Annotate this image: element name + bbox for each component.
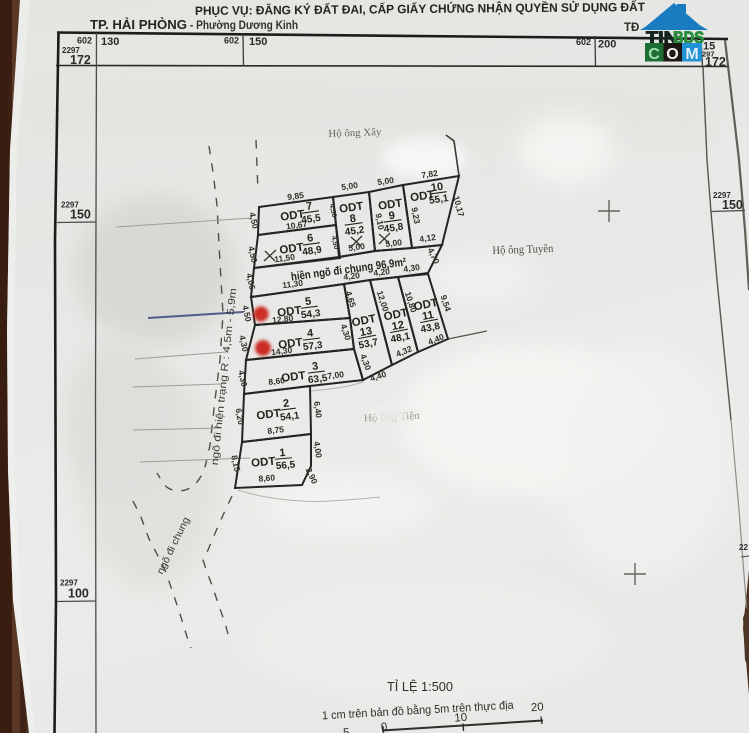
svg-text:ODT: ODT — [251, 456, 276, 470]
svg-text:Hộ ông Xây: Hộ ông Xây — [328, 127, 382, 140]
svg-text:602: 602 — [576, 37, 591, 47]
svg-text:172: 172 — [705, 55, 726, 69]
svg-text:200: 200 — [598, 39, 616, 51]
svg-text:22: 22 — [739, 543, 748, 552]
svg-text:130: 130 — [101, 36, 119, 48]
svg-text:TỈ LỆ 1:500: TỈ LỆ 1:500 — [387, 679, 453, 694]
svg-text:5,00: 5,00 — [385, 237, 403, 249]
svg-text:8,60: 8,60 — [268, 375, 286, 387]
svg-text:1: 1 — [279, 447, 286, 459]
svg-text:O: O — [666, 46, 678, 63]
svg-text:TP. HẢI PHÒNG: TP. HẢI PHÒNG — [90, 17, 187, 32]
svg-text:8,75: 8,75 — [267, 424, 285, 436]
svg-text:M: M — [685, 46, 698, 63]
svg-text:100: 100 — [68, 587, 89, 601]
svg-text:172: 172 — [70, 53, 91, 67]
svg-text:TĐ: TĐ — [624, 22, 639, 34]
svg-text:602: 602 — [77, 36, 92, 46]
svg-text:4,20: 4,20 — [343, 270, 361, 282]
svg-text:7,00: 7,00 — [327, 369, 345, 381]
svg-text:5: 5 — [343, 727, 350, 733]
svg-text:150: 150 — [70, 208, 91, 222]
svg-text:- Phường Dương Kinh: - Phường Dương Kinh — [190, 20, 298, 32]
svg-text:150: 150 — [249, 36, 267, 48]
svg-text:10: 10 — [454, 712, 468, 725]
svg-text:602: 602 — [224, 36, 239, 46]
svg-text:4,20: 4,20 — [373, 266, 391, 278]
svg-text:Hộ ông Tuyên: Hộ ông Tuyên — [492, 243, 554, 257]
svg-text:150: 150 — [722, 198, 743, 212]
svg-text:8,60: 8,60 — [258, 472, 275, 483]
svg-text:C: C — [648, 46, 660, 63]
svg-text:20: 20 — [530, 701, 544, 714]
svg-text:56,5: 56,5 — [275, 459, 296, 472]
